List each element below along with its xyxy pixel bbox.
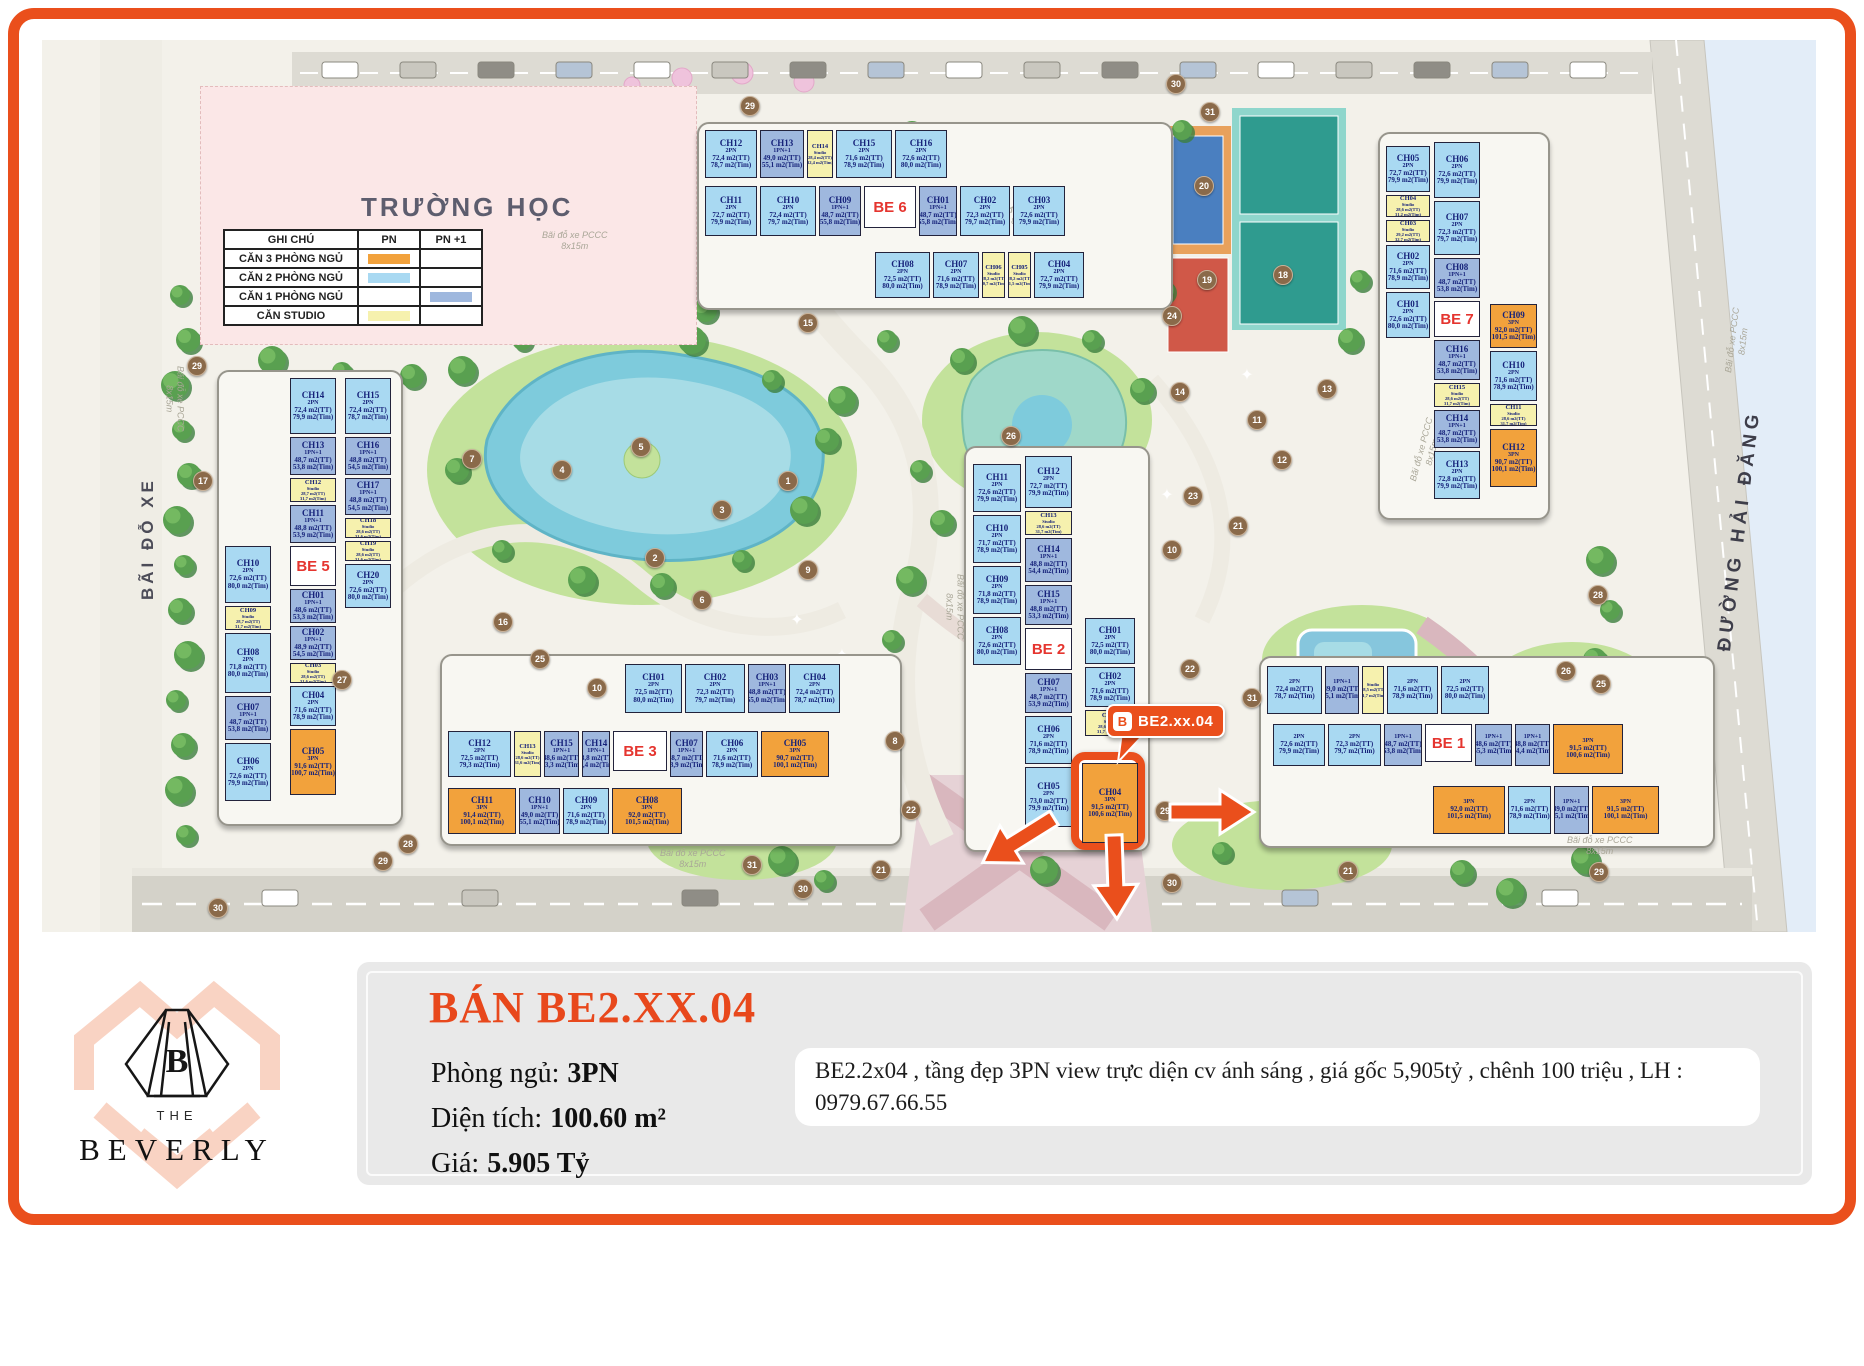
unit-cell-be1-unit[interactable]: 2PN72,6 m2(TT)79,9 m2(Tim) [1273, 724, 1325, 766]
selected-unit-highlight[interactable]: CH043PN91,5 m2(TT)100,6 m2(Tim) [1071, 752, 1145, 850]
amenity-number-31: 31 [1242, 688, 1262, 708]
unit-cell-be5-ch19[interactable]: CH19Studio28,6 m2(TT)31,6 m2(Tim) [345, 541, 391, 561]
unit-cell-be7-ch11[interactable]: CH11Studio28,6 m2(TT)31,7 m2(Tim) [1490, 404, 1537, 426]
amenity-number-6: 6 [692, 590, 712, 610]
unit-cell-be6-ch09[interactable]: CH091PN+148,7 m2(TT)55,8 m2(Tim) [819, 186, 861, 236]
unit-cell-be7-ch02[interactable]: CH022PN71,6 m2(TT)78,9 m2(Tim) [1386, 245, 1430, 289]
unit-cell-be2-ch13[interactable]: CH13Studio28,6 m2(TT)31,7 m2(Tim) [1025, 511, 1072, 535]
svg-text:✦: ✦ [1240, 367, 1253, 384]
unit-cell-be1-unit[interactable]: 1PN+149,0 m2(TT)55,1 m2(Tim) [1554, 786, 1589, 834]
building-label-be3: BE 3 [613, 731, 667, 771]
unit-cell-be3-ch05[interactable]: CH053PN90,7 m2(TT)100,1 m2(Tim) [761, 731, 829, 777]
amenity-number-13: 13 [1317, 379, 1337, 399]
unit-cell-be1-unit[interactable]: 2PN72,4 m2(TT)78,7 m2(Tim) [1267, 666, 1322, 714]
unit-row-be1: 2PN72,4 m2(TT)78,7 m2(Tim)1PN+149,0 m2(T… [1267, 666, 1489, 714]
legend-header: PN +1 [420, 230, 482, 249]
amenity-number-18: 18 [1273, 265, 1293, 285]
logo-monogram: B [166, 1043, 189, 1080]
pccc-parking-label: Bãi đỗ xe PCCC 8x15m [944, 574, 966, 640]
amenity-number-10: 10 [587, 678, 607, 698]
unit-row-be7: CH052PN72,7 m2(TT)79,9 m2(Tim)CH04Studio… [1386, 146, 1430, 338]
unit-cell-be3-ch15[interactable]: CH151PN+148,6 m2(TT)53,3 m2(Tim) [544, 731, 579, 777]
unit-cell-be1-unit[interactable]: 2PN72,3 m2(TT)79,7 m2(Tim) [1328, 724, 1381, 766]
amenity-number-29: 29 [373, 851, 393, 871]
building-label-be2: BE 2 [1025, 628, 1072, 670]
legend-row: CĂN 1 PHÒNG NGỦ [224, 287, 482, 306]
building-label-be1: BE 1 [1425, 724, 1472, 762]
unit-cell-be6-ch01[interactable]: CH011PN+148,7 m2(TT)55,8 m2(Tim) [919, 186, 957, 236]
unit-cell-be1-unit[interactable]: 2PN71,6 m2(TT)78,9 m2(Tim) [1508, 786, 1551, 834]
unit-cell-be3-ch04[interactable]: CH042PN72,4 m2(TT)78,7 m2(Tim) [789, 664, 840, 713]
unit-cell-be6-ch05[interactable]: CH05Studio28,2 m2(TT)31,5 m2(Tim) [1008, 252, 1031, 298]
amenity-number-17: 17 [193, 471, 213, 491]
map-legend: GHI CHÚPNPN +1CĂN 3 PHÒNG NGỦCĂN 2 PHÒNG… [223, 229, 483, 326]
amenity-number-9: 9 [798, 560, 818, 580]
amenity-number-21: 21 [871, 860, 891, 880]
unit-cell-be5-ch10[interactable]: CH102PN72,6 m2(TT)80,0 m2(Tim) [225, 546, 271, 603]
unit-row-be7: CH093PN92,0 m2(TT)101,5 m2(Tim)CH102PN71… [1490, 304, 1537, 487]
amenity-number-26: 26 [1001, 426, 1021, 446]
pccc-parking-label: Bãi đỗ xe PCCC 8x15m [1567, 835, 1633, 857]
unit-cell-be2-selected-ch04[interactable]: CH043PN91,5 m2(TT)100,6 m2(Tim) [1082, 763, 1138, 843]
amenity-number-31: 31 [1200, 102, 1220, 122]
amenity-number-29: 29 [1589, 862, 1609, 882]
unit-cell-be7-ch16[interactable]: CH161PN+148,7 m2(TT)53,8 m2(Tim) [1434, 340, 1480, 380]
unit-cell-be6-ch02[interactable]: CH022PN72,3 m2(TT)79,7 m2(Tim) [960, 186, 1010, 236]
amenity-number-22: 22 [1180, 659, 1200, 679]
legend-row: CĂN STUDIO [224, 306, 482, 325]
amenity-number-3: 3 [712, 500, 732, 520]
unit-cell-be5-ch01[interactable]: CH011PN+148,6 m2(TT)53,3 m2(Tim) [290, 589, 336, 623]
unit-row-be3: CH113PN91,4 m2(TT)100,1 m2(Tim)CH101PN+1… [448, 788, 682, 834]
unit-row-be5: CH152PN72,4 m2(TT)78,7 m2(Tim)CH161PN+14… [345, 378, 391, 608]
unit-row-be7: CH062PN72,6 m2(TT)79,9 m2(Tim)CH072PN72,… [1434, 142, 1480, 499]
amenity-number-29: 29 [1155, 801, 1175, 821]
unit-cell-be3-ch09[interactable]: CH092PN71,6 m2(TT)78,9 m2(Tim) [563, 788, 609, 834]
unit-cell-be2-ch08[interactable]: CH082PN72,6 m2(TT)80,0 m2(Tim) [973, 617, 1021, 665]
page: { "page": { "frame_color": "#EA4F1C" }, … [0, 0, 1864, 1366]
unit-cell-be1-unit[interactable]: 3PN91,5 m2(TT)100,6 m2(Tim) [1553, 724, 1623, 774]
unit-cell-be1-unit[interactable]: 1PN+149,0 m2(TT)55,1 m2(Tim) [1325, 666, 1359, 714]
unit-row-be3: CH122PN72,5 m2(TT)79,3 m2(Tim)CH13Studio… [448, 731, 829, 777]
amenity-number-19: 19 [1197, 270, 1217, 290]
unit-cell-be7-ch15[interactable]: CH15Studio28,6 m2(TT)31,7 m2(Tim) [1434, 383, 1480, 407]
unit-cell-be2-ch05[interactable]: CH052PN73,0 m2(TT)79,9 m2(Tim) [1025, 767, 1072, 827]
unit-cell-be6-ch14[interactable]: CH14Studio28,4 m2(TT)32,4 m2(Tim) [807, 130, 833, 178]
unit-cell-be3-ch06[interactable]: CH062PN71,6 m2(TT)78,9 m2(Tim) [706, 731, 758, 777]
unit-cell-be1-unit[interactable]: 2PN72,5 m2(TT)80,0 m2(Tim) [1441, 666, 1489, 714]
unit-cell-be7-ch05[interactable]: CH052PN72,7 m2(TT)79,9 m2(Tim) [1386, 146, 1430, 192]
amenity-number-30: 30 [208, 898, 228, 918]
unit-cell-be7-ch01[interactable]: CH012PN72,6 m2(TT)80,0 m2(Tim) [1386, 292, 1430, 338]
site-plan-map[interactable]: ✦✦✦✦✦ TRƯỜNG HỌC GHI CHÚPNPN +1CĂN 3 PHÒ… [42, 40, 1816, 932]
unit-cell-be5-ch17[interactable]: CH171PN+148,8 m2(TT)54,5 m2(Tim) [345, 478, 391, 515]
unit-cell-be7-ch14[interactable]: CH141PN+148,7 m2(TT)53,8 m2(Tim) [1434, 410, 1480, 448]
marker-label: BE2.xx.04 [1138, 713, 1213, 730]
unit-cell-be7-ch07[interactable]: CH072PN72,3 m2(TT)79,7 m2(Tim) [1434, 201, 1480, 255]
amenity-number-22: 22 [901, 800, 921, 820]
unit-cell-be5-ch03[interactable]: CH03Studio28,6 m2(TT)31,6 m2(Tim) [290, 663, 336, 683]
legend-header: PN [358, 230, 420, 249]
unit-cell-be3-ch01[interactable]: CH012PN72,5 m2(TT)80,0 m2(Tim) [625, 664, 682, 713]
legend-header: GHI CHÚ [224, 230, 358, 249]
unit-cell-be7-ch13[interactable]: CH132PN72,8 m2(TT)79,9 m2(Tim) [1434, 451, 1480, 499]
unit-cell-be2-ch14[interactable]: CH141PN+148,8 m2(TT)54,4 m2(Tim) [1025, 538, 1072, 582]
legend-swatch [368, 254, 410, 264]
amenity-number-16: 16 [493, 612, 513, 632]
unit-cell-be6-ch10[interactable]: CH102PN72,4 m2(TT)79,7 m2(Tim) [760, 186, 816, 236]
unit-cell-be5-ch14[interactable]: CH142PN72,4 m2(TT)79,9 m2(Tim) [290, 378, 336, 434]
listing-field: Diện tích:100.60 m² [431, 1103, 666, 1135]
listing-description: BE2.2x04 , tầng đẹp 3PN view trực diện c… [795, 1048, 1760, 1126]
unit-cell-be1-unit[interactable]: 1PN+148,6 m2(TT)55,3 m2(Tim) [1475, 724, 1512, 766]
legend-swatch [368, 273, 410, 283]
unit-cell-be2-ch10[interactable]: CH102PN71,7 m2(TT)78,9 m2(Tim) [973, 515, 1021, 563]
svg-text:✦: ✦ [790, 612, 803, 629]
unit-row-be5: CH142PN72,4 m2(TT)79,9 m2(Tim)CH131PN+14… [290, 378, 336, 795]
amenity-number-1: 1 [778, 471, 798, 491]
unit-cell-be5-ch20[interactable]: CH202PN72,6 m2(TT)80,0 m2(Tim) [345, 564, 391, 608]
unit-row-be2: CH112PN72,6 m2(TT)79,9 m2(Tim)CH102PN71,… [973, 464, 1021, 665]
amenity-number-15: 15 [798, 313, 818, 333]
amenity-number-28: 28 [398, 834, 418, 854]
unit-cell-be7-ch06[interactable]: CH062PN72,6 m2(TT)79,9 m2(Tim) [1434, 142, 1480, 198]
road-label-parking: BÃI ĐỖ XE [138, 477, 158, 600]
unit-row-be2: CH122PN72,7 m2(TT)79,9 m2(Tim)CH13Studio… [1025, 456, 1072, 827]
unit-cell-be2-ch15[interactable]: CH151PN+148,8 m2(TT)53,3 m2(Tim) [1025, 585, 1072, 625]
unit-cell-be7-ch08[interactable]: CH081PN+148,7 m2(TT)53,8 m2(Tim) [1434, 258, 1480, 298]
unit-row-be3: CH012PN72,5 m2(TT)80,0 m2(Tim)CH022PN72,… [625, 664, 840, 713]
unit-cell-be7-ch09[interactable]: CH093PN92,0 m2(TT)101,5 m2(Tim) [1490, 304, 1537, 348]
unit-cell-be1-unit[interactable]: 1PN+148,7 m2(TT)53,8 m2(Tim) [1384, 724, 1422, 766]
unit-cell-be5-ch11[interactable]: CH111PN+148,8 m2(TT)53,9 m2(Tim) [290, 505, 336, 543]
unit-cell-be3-ch08[interactable]: CH083PN92,0 m2(TT)101,5 m2(Tim) [612, 788, 682, 834]
unit-row-be5: CH102PN72,6 m2(TT)80,0 m2(Tim)CH09Studio… [225, 546, 271, 801]
pccc-parking-label: Bãi đỗ xe PCCC 8x15m [660, 848, 726, 870]
unit-row-be6: CH112PN72,7 m2(TT)79,9 m2(Tim)CH102PN72,… [705, 186, 1065, 236]
unit-cell-be2-ch07[interactable]: CH071PN+148,7 m2(TT)53,9 m2(Tim) [1025, 673, 1072, 713]
unit-cell-be1-unit[interactable]: 3PN91,5 m2(TT)100,1 m2(Tim) [1592, 786, 1659, 834]
amenity-number-25: 25 [1591, 674, 1611, 694]
building-label-be6: BE 6 [864, 186, 916, 228]
amenity-number-21: 21 [1228, 516, 1248, 536]
unit-cell-be2-ch12[interactable]: CH122PN72,7 m2(TT)79,9 m2(Tim) [1025, 456, 1072, 508]
amenity-number-26: 26 [1556, 661, 1576, 681]
unit-cell-be6-ch07[interactable]: CH072PN71,6 m2(TT)78,9 m2(Tim) [933, 252, 979, 298]
unit-cell-be6-ch11[interactable]: CH112PN72,7 m2(TT)79,9 m2(Tim) [705, 186, 757, 236]
amenity-number-29: 29 [740, 96, 760, 116]
unit-row-be1: 2PN72,6 m2(TT)79,9 m2(Tim)2PN72,3 m2(TT)… [1273, 724, 1623, 774]
brand-logo: B THE BEVERLY [68, 968, 286, 1213]
amenity-number-8: 8 [885, 731, 905, 751]
unit-row-be6: CH122PN72,4 m2(TT)78,7 m2(Tim)CH131PN+14… [705, 130, 947, 178]
amenity-number-12: 12 [1272, 450, 1292, 470]
amenity-number-21: 21 [1338, 861, 1358, 881]
unit-cell-be7-ch04[interactable]: CH04Studio28,6 m2(TT)31,2 m2(Tim) [1386, 195, 1430, 217]
building-label-be5: BE 5 [290, 546, 336, 586]
unit-cell-be2-ch11[interactable]: CH112PN72,6 m2(TT)79,9 m2(Tim) [973, 464, 1021, 512]
amenity-number-7: 7 [462, 449, 482, 469]
amenity-number-14: 14 [1170, 382, 1190, 402]
unit-row-be1: 3PN92,0 m2(TT)101,5 m2(Tim)2PN71,6 m2(TT… [1433, 786, 1659, 834]
legend-swatch [368, 311, 410, 321]
unit-cell-be5-ch04[interactable]: CH042PN71,6 m2(TT)78,9 m2(Tim) [290, 686, 336, 726]
unit-cell-be5-ch02[interactable]: CH021PN+148,9 m2(TT)54,5 m2(Tim) [290, 626, 336, 660]
unit-cell-be2-ch09[interactable]: CH092PN71,8 m2(TT)78,9 m2(Tim) [973, 566, 1021, 614]
unit-row-be6: CH082PN72,5 m2(TT)80,0 m2(Tim)CH072PN71,… [875, 252, 1084, 298]
amenity-number-20: 20 [1194, 176, 1214, 196]
unit-cell-be3-ch12[interactable]: CH122PN72,5 m2(TT)79,3 m2(Tim) [448, 731, 511, 777]
amenity-number-31: 31 [742, 855, 762, 875]
unit-cell-be3-ch10[interactable]: CH101PN+149,0 m2(TT)55,1 m2(Tim) [519, 788, 560, 834]
unit-cell-be3-ch07[interactable]: CH071PN+148,7 m2(TT)53,9 m2(Tim) [670, 731, 703, 777]
amenity-number-28: 28 [1588, 585, 1608, 605]
listing-field: Giá:5.905 Tỷ [431, 1148, 666, 1180]
amenity-number-30: 30 [1166, 74, 1186, 94]
unit-cell-be2-ch01[interactable]: CH012PN72,5 m2(TT)80,0 m2(Tim) [1085, 618, 1135, 664]
amenity-number-4: 4 [552, 460, 572, 480]
school-label: TRƯỜNG HỌC [361, 192, 573, 223]
listing-title: BÁN BE2.XX.04 [429, 982, 756, 1033]
logo-beverly: BEVERLY [79, 1132, 275, 1167]
amenity-number-30: 30 [1162, 873, 1182, 893]
unit-cell-be7-ch12[interactable]: CH123PN90,7 m2(TT)100,1 m2(Tim) [1490, 429, 1537, 487]
unit-cell-be5-ch15[interactable]: CH152PN72,4 m2(TT)78,7 m2(Tim) [345, 378, 391, 434]
amenity-number-27: 27 [332, 670, 352, 690]
listing-field: Phòng ngủ:3PN [431, 1058, 666, 1090]
unit-cell-be2-ch06[interactable]: CH062PN71,6 m2(TT)78,9 m2(Tim) [1025, 716, 1072, 764]
unit-cell-be5-ch08[interactable]: CH082PN71,8 m2(TT)80,0 m2(Tim) [225, 633, 271, 693]
unit-cell-be6-ch04[interactable]: CH042PN72,7 m2(TT)79,9 m2(Tim) [1034, 252, 1084, 298]
unit-cell-be3-ch02[interactable]: CH022PN72,3 m2(TT)79,7 m2(Tim) [685, 664, 745, 713]
unit-cell-be3-ch11[interactable]: CH113PN91,4 m2(TT)100,1 m2(Tim) [448, 788, 516, 834]
legend-swatch [430, 292, 472, 302]
unit-cell-be5-ch16[interactable]: CH161PN+148,8 m2(TT)54,5 m2(Tim) [345, 437, 391, 475]
unit-cell-be6-ch15[interactable]: CH152PN71,6 m2(TT)78,9 m2(Tim) [836, 130, 892, 178]
unit-cell-be5-ch12[interactable]: CH12Studio28,7 m2(TT)31,7 m2(Tim) [290, 478, 336, 502]
unit-cell-be1-unit[interactable]: Studio28,5 m2(TT)31,7 m2(Tim) [1362, 666, 1384, 714]
unit-cell-be1-unit[interactable]: 2PN71,6 m2(TT)78,9 m2(Tim) [1387, 666, 1438, 714]
listing-panel: BÁN BE2.XX.04 Phòng ngủ:3PNDiện tích:100… [357, 962, 1812, 1185]
unit-cell-be6-ch12[interactable]: CH122PN72,4 m2(TT)78,7 m2(Tim) [705, 130, 757, 178]
unit-cell-be3-ch14[interactable]: CH141PN+148,8 m2(TT)54,4 m2(Tim) [582, 731, 610, 777]
amenity-number-24: 24 [1162, 306, 1182, 326]
unit-cell-be1-unit[interactable]: 3PN92,0 m2(TT)101,5 m2(Tim) [1433, 786, 1505, 834]
logo-the: THE [157, 1108, 198, 1123]
unit-cell-be6-ch08[interactable]: CH082PN72,5 m2(TT)80,0 m2(Tim) [875, 252, 930, 298]
unit-cell-be1-unit[interactable]: 1PN+148,8 m2(TT)54,4 m2(Tim) [1515, 724, 1550, 766]
legend-row: CĂN 3 PHÒNG NGỦ [224, 249, 482, 268]
marker-logo-icon: B [1113, 712, 1132, 731]
amenity-number-2: 2 [645, 548, 665, 568]
unit-cell-be5-ch18[interactable]: CH18Studio28,6 m2(TT)31,6 m2(Tim) [345, 518, 391, 538]
unit-cell-be3-ch13[interactable]: CH13Studio28,6 m2(TT)31,6 m2(Tim) [514, 731, 541, 777]
amenity-number-10: 10 [1162, 540, 1182, 560]
amenity-number-30: 30 [793, 879, 813, 899]
amenity-number-5: 5 [631, 437, 651, 457]
amenity-number-23: 23 [1183, 486, 1203, 506]
unit-cell-be5-ch05[interactable]: CH053PN91,6 m2(TT)100,7 m2(Tim) [290, 729, 336, 795]
legend-row: CĂN 2 PHÒNG NGỦ [224, 268, 482, 287]
unit-cell-be5-ch09[interactable]: CH09Studio28,7 m2(TT)31,7 m2(Tim) [225, 606, 271, 630]
unit-cell-be6-ch06[interactable]: CH06Studio28,2 m2(TT)30,7 m2(Tim) [982, 252, 1005, 298]
amenity-number-25: 25 [530, 649, 550, 669]
amenity-number-11: 11 [1247, 410, 1267, 430]
unit-cell-be5-ch06[interactable]: CH062PN72,6 m2(TT)79,9 m2(Tim) [225, 743, 271, 801]
unit-cell-be6-ch16[interactable]: CH162PN72,6 m2(TT)80,0 m2(Tim) [895, 130, 947, 178]
unit-cell-be6-ch13[interactable]: CH131PN+149,0 m2(TT)55,1 m2(Tim) [760, 130, 804, 178]
unit-cell-be7-ch03[interactable]: CH03Studio29,2 m2(TT)32,7 m2(Tim) [1386, 220, 1430, 242]
unit-cell-be6-ch03[interactable]: CH032PN72,6 m2(TT)79,9 m2(Tim) [1013, 186, 1065, 236]
unit-cell-be7-ch10[interactable]: CH102PN71,6 m2(TT)78,9 m2(Tim) [1490, 351, 1537, 401]
pccc-parking-label: Bãi đỗ xe PCCC 8x15m [542, 230, 608, 252]
school-zone: TRƯỜNG HỌC GHI CHÚPNPN +1CĂN 3 PHÒNG NGỦ… [200, 86, 697, 345]
amenity-number-29: 29 [187, 356, 207, 376]
svg-text:✦: ✦ [1160, 487, 1173, 504]
pccc-parking-label: Bãi đỗ xe PCCC 8x15m [164, 366, 186, 432]
unit-cell-be3-ch03[interactable]: CH031PN+148,8 m2(TT)55,0 m2(Tim) [748, 664, 786, 713]
unit-cell-be5-ch07[interactable]: CH071PN+148,7 m2(TT)53,8 m2(Tim) [225, 696, 271, 740]
unit-marker[interactable]: B BE2.xx.04 [1106, 704, 1225, 738]
building-label-be7: BE 7 [1434, 301, 1480, 337]
unit-cell-be5-ch13[interactable]: CH131PN+148,7 m2(TT)53,8 m2(Tim) [290, 437, 336, 475]
unit-cell-be2-ch02[interactable]: CH022PN71,6 m2(TT)78,9 m2(Tim) [1085, 667, 1135, 707]
